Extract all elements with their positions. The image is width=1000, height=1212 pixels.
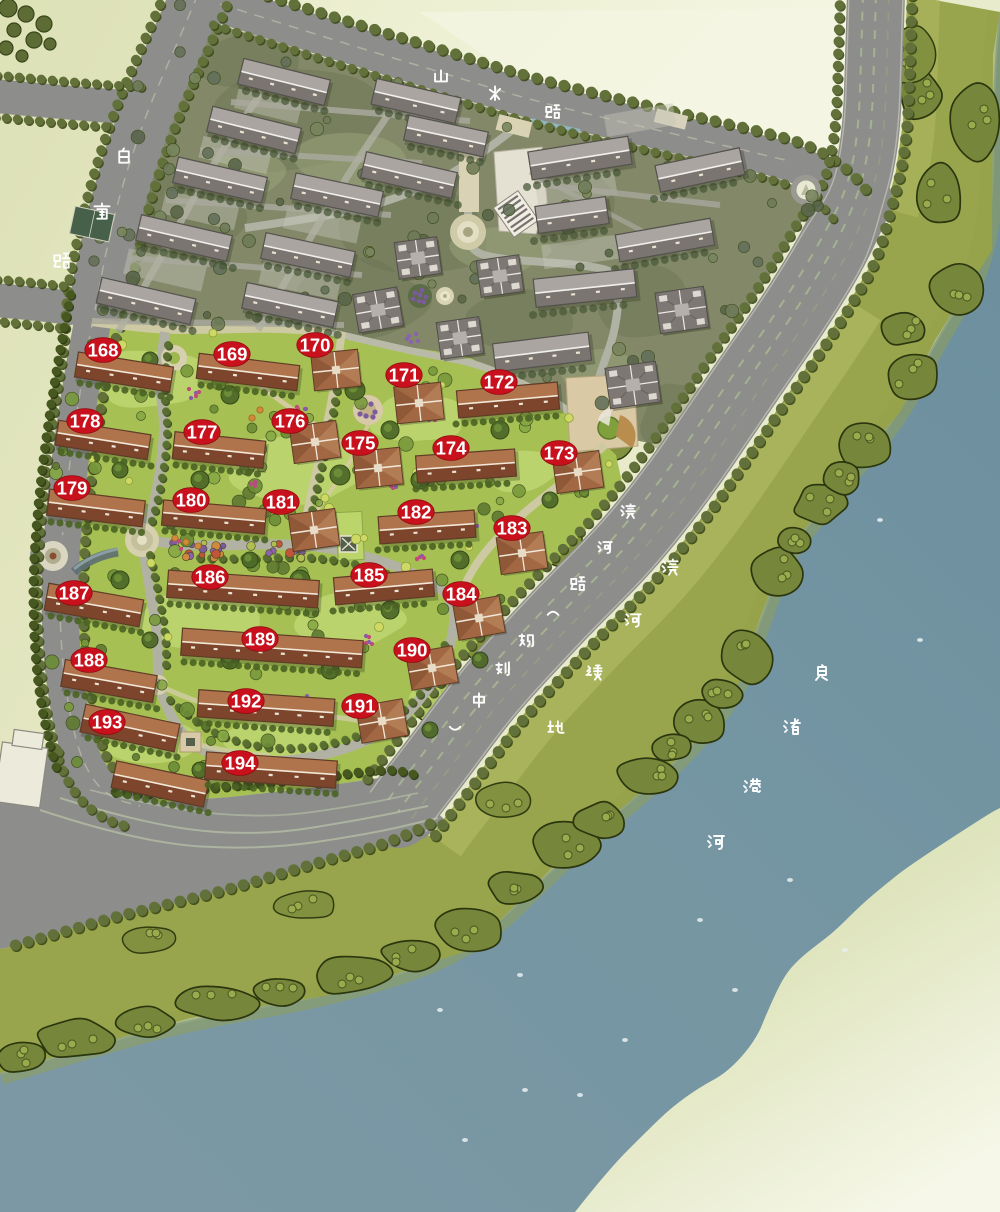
svg-text:173: 173 [544,443,575,464]
svg-text:171: 171 [389,365,420,386]
svg-text:185: 185 [354,565,385,586]
svg-text:184: 184 [446,584,478,605]
svg-text:178: 178 [70,411,101,432]
svg-text:190: 190 [397,640,428,661]
svg-text:172: 172 [484,372,515,393]
svg-text:189: 189 [245,629,276,650]
svg-text:174: 174 [436,438,468,459]
svg-text:187: 187 [59,583,90,604]
svg-text:179: 179 [57,478,88,499]
svg-text:170: 170 [300,335,331,356]
svg-text:182: 182 [401,502,432,523]
svg-text:169: 169 [217,344,248,365]
svg-text:181: 181 [266,492,297,513]
svg-text:175: 175 [345,433,376,454]
svg-text:177: 177 [187,422,218,443]
svg-text:194: 194 [225,753,257,774]
svg-text:176: 176 [275,411,306,432]
svg-text:186: 186 [195,567,226,588]
svg-text:188: 188 [74,650,105,671]
svg-text:193: 193 [92,712,123,733]
svg-text:168: 168 [88,340,119,361]
svg-text:191: 191 [345,696,376,717]
svg-text:183: 183 [497,518,528,539]
svg-text:180: 180 [176,490,207,511]
svg-text:192: 192 [231,691,262,712]
